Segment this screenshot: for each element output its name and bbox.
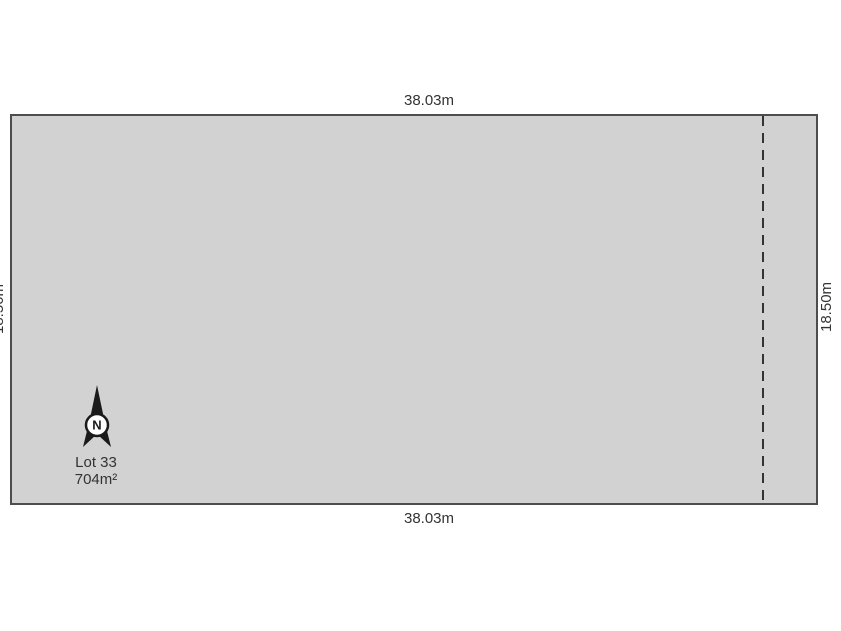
compass-north-letter: N [92,418,101,433]
dimension-left-clipped: 18.50m [0,286,7,334]
lot-label: Lot 33 704m² [75,454,118,488]
lot-plan-diagram: 38.03m 38.03m 18.50m 18.50m N Lot 33 704… [0,0,841,631]
lot-parcel-rectangle [10,114,818,505]
lot-name: Lot 33 [75,454,118,471]
dashed-boundary-line [762,116,764,503]
lot-area: 704m² [75,471,118,488]
dimension-top: 38.03m [404,93,454,109]
dimension-right: 18.50m [819,284,835,332]
north-compass-icon: N [79,385,115,451]
dimension-bottom: 38.03m [404,511,454,527]
